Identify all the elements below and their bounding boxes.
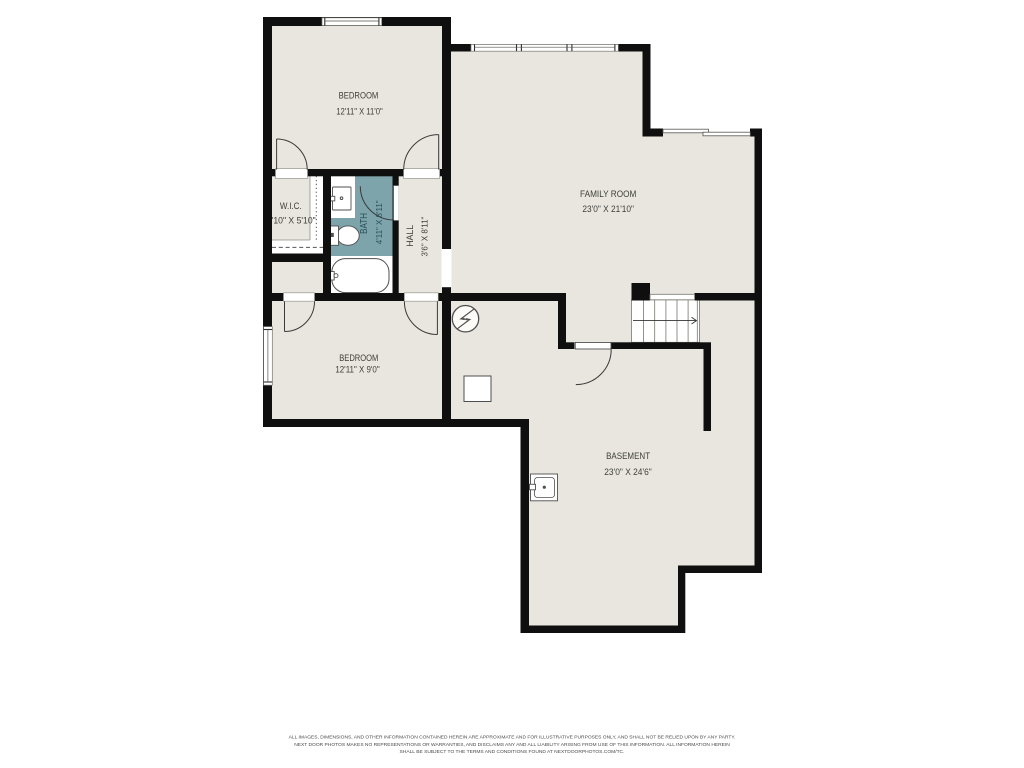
svg-text:FAMILY ROOM: FAMILY ROOM bbox=[580, 189, 636, 199]
svg-text:BASEMENT: BASEMENT bbox=[606, 451, 650, 461]
svg-text:23'0" X 21'10": 23'0" X 21'10" bbox=[582, 204, 634, 214]
svg-text:W.I.C.: W.I.C. bbox=[280, 201, 302, 211]
svg-text:23'0" X 24'6": 23'0" X 24'6" bbox=[604, 467, 652, 477]
svg-text:BATH: BATH bbox=[359, 213, 370, 234]
svg-text:BEDROOM: BEDROOM bbox=[339, 353, 378, 363]
svg-text:12'11" X 11'0": 12'11" X 11'0" bbox=[336, 106, 382, 116]
svg-text:SHALL BE SUBJECT TO THE TERMS: SHALL BE SUBJECT TO THE TERMS AND CONDIT… bbox=[400, 749, 625, 755]
svg-text:4'11" X 8'11": 4'11" X 8'11" bbox=[374, 200, 384, 244]
svg-text:'10" X 5'10": '10" X 5'10" bbox=[272, 215, 316, 225]
svg-text:HALL: HALL bbox=[405, 225, 415, 247]
svg-text:ALL IMAGES, DIMENSIONS, AND OT: ALL IMAGES, DIMENSIONS, AND OTHER INFORM… bbox=[289, 734, 736, 740]
svg-text:12'11" X 9'0": 12'11" X 9'0" bbox=[335, 365, 379, 375]
svg-text:3'6" X 8'11": 3'6" X 8'11" bbox=[419, 217, 429, 257]
svg-text:BEDROOM: BEDROOM bbox=[339, 91, 379, 101]
svg-text:NEXT DOOR PHOTOS MAKES NO REPR: NEXT DOOR PHOTOS MAKES NO REPRESENTATION… bbox=[294, 742, 730, 748]
